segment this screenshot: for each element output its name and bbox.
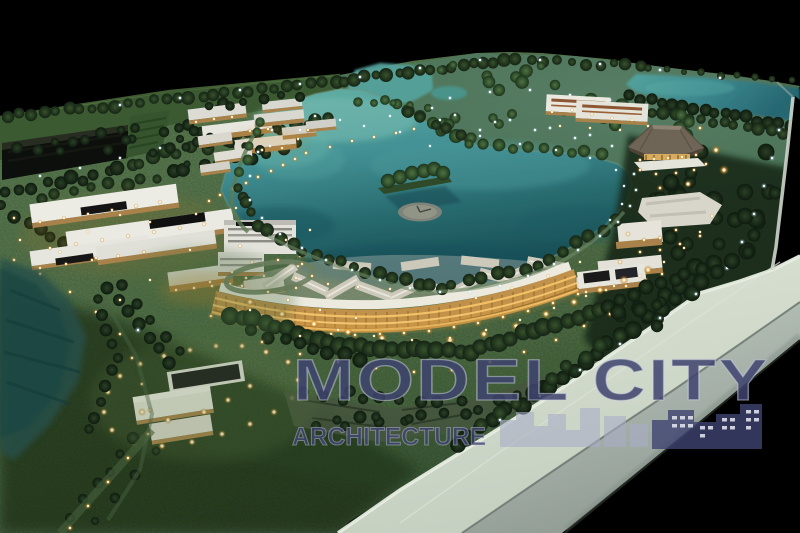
svg-text:ARCHITECTURE: ARCHITECTURE: [292, 423, 486, 451]
svg-text:MODEL CITY: MODEL CITY: [293, 348, 770, 413]
